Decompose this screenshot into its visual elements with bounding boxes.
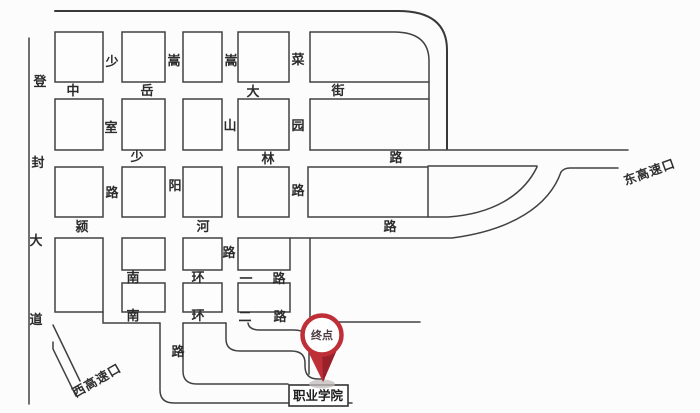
street-char: 园	[291, 119, 304, 134]
city-block	[55, 32, 103, 82]
street-char: 阳	[168, 179, 181, 194]
city-block	[238, 99, 289, 150]
city-block	[183, 99, 222, 150]
street-char: 大	[246, 84, 259, 100]
city-block	[183, 238, 222, 270]
street-label-yinghe-road: 颍 河 路	[75, 219, 397, 235]
west-expressway-exit-label: 西高速口	[70, 360, 124, 400]
street-char: 路	[105, 185, 119, 201]
destination-label: 职业学院	[293, 388, 344, 403]
city-block	[55, 99, 103, 150]
city-block	[238, 283, 290, 312]
city-block	[55, 167, 103, 217]
street-char: 岳	[140, 84, 153, 99]
street-char: 室	[104, 120, 117, 136]
street-char: 路	[171, 344, 185, 360]
street-char: 环	[191, 271, 204, 286]
stepped-road-inner-edge	[248, 323, 309, 374]
street-char: 街	[330, 83, 344, 99]
street-char: 路	[272, 271, 286, 287]
street-char: 登	[32, 74, 47, 90]
city-blocks	[55, 32, 428, 312]
west-ramp-edge	[53, 325, 80, 381]
street-char: 二	[238, 310, 251, 325]
college-road-inner-edge	[183, 323, 288, 384]
street-char: 封	[31, 155, 44, 171]
street-char: 少	[129, 149, 143, 165]
street-label-caiyuan-road: 菜 园 路	[290, 52, 305, 199]
street-char: 环	[191, 309, 204, 324]
pin-shadow	[309, 380, 335, 389]
street-char: 菜	[290, 52, 304, 68]
street-char: 林	[261, 151, 274, 167]
street-char: 一	[239, 272, 252, 287]
yinghe-road-north-arc	[428, 167, 537, 217]
city-block	[122, 99, 165, 150]
map-canvas: 登 封 大 道 中 岳 大 街 少 室 路 嵩 阳 路 嵩 山 路	[0, 0, 700, 413]
street-char: 南	[126, 308, 139, 324]
street-label-dengfeng-avenue: 登 封 大 道	[29, 74, 47, 328]
city-block	[183, 283, 222, 312]
street-char: 河	[196, 219, 209, 235]
city-block	[238, 32, 289, 82]
city-block	[122, 283, 165, 312]
street-char: 路	[291, 183, 305, 199]
street-label-shaolin-road: 少 林 路	[129, 149, 403, 167]
street-label-zhongyue-street: 中 岳 大 街	[66, 83, 344, 100]
street-label-shaoshi-road: 少 室 路	[104, 54, 119, 201]
pin-label: 终点	[311, 328, 333, 342]
street-char: 路	[383, 219, 397, 235]
street-char: 中	[66, 83, 79, 99]
city-block	[183, 167, 222, 217]
street-char: 大	[29, 233, 42, 249]
east-expressway-exit-label: 东高速口	[622, 155, 678, 188]
street-char: 嵩	[224, 53, 237, 69]
city-block	[122, 167, 165, 217]
street-char: 路	[273, 309, 287, 325]
city-block	[122, 238, 165, 270]
city-block	[183, 32, 222, 82]
street-char: 道	[29, 312, 42, 328]
road-map-svg: 登 封 大 道 中 岳 大 街 少 室 路 嵩 阳 路 嵩 山 路	[0, 0, 700, 413]
city-block	[238, 167, 289, 217]
street-char: 少	[104, 54, 118, 70]
street-char: 南	[126, 270, 139, 286]
street-char: 路	[222, 245, 236, 261]
street-char: 嵩	[167, 53, 180, 69]
street-char: 山	[223, 118, 236, 134]
top-road-inner-edge	[310, 32, 429, 149]
city-block	[238, 238, 290, 270]
city-block	[122, 32, 165, 82]
city-block-wide	[308, 167, 428, 217]
street-char: 路	[389, 150, 403, 166]
street-char: 颍	[75, 220, 88, 235]
street-label-songshan-road: 嵩 山 路	[222, 53, 237, 261]
city-block-tall	[55, 238, 103, 312]
